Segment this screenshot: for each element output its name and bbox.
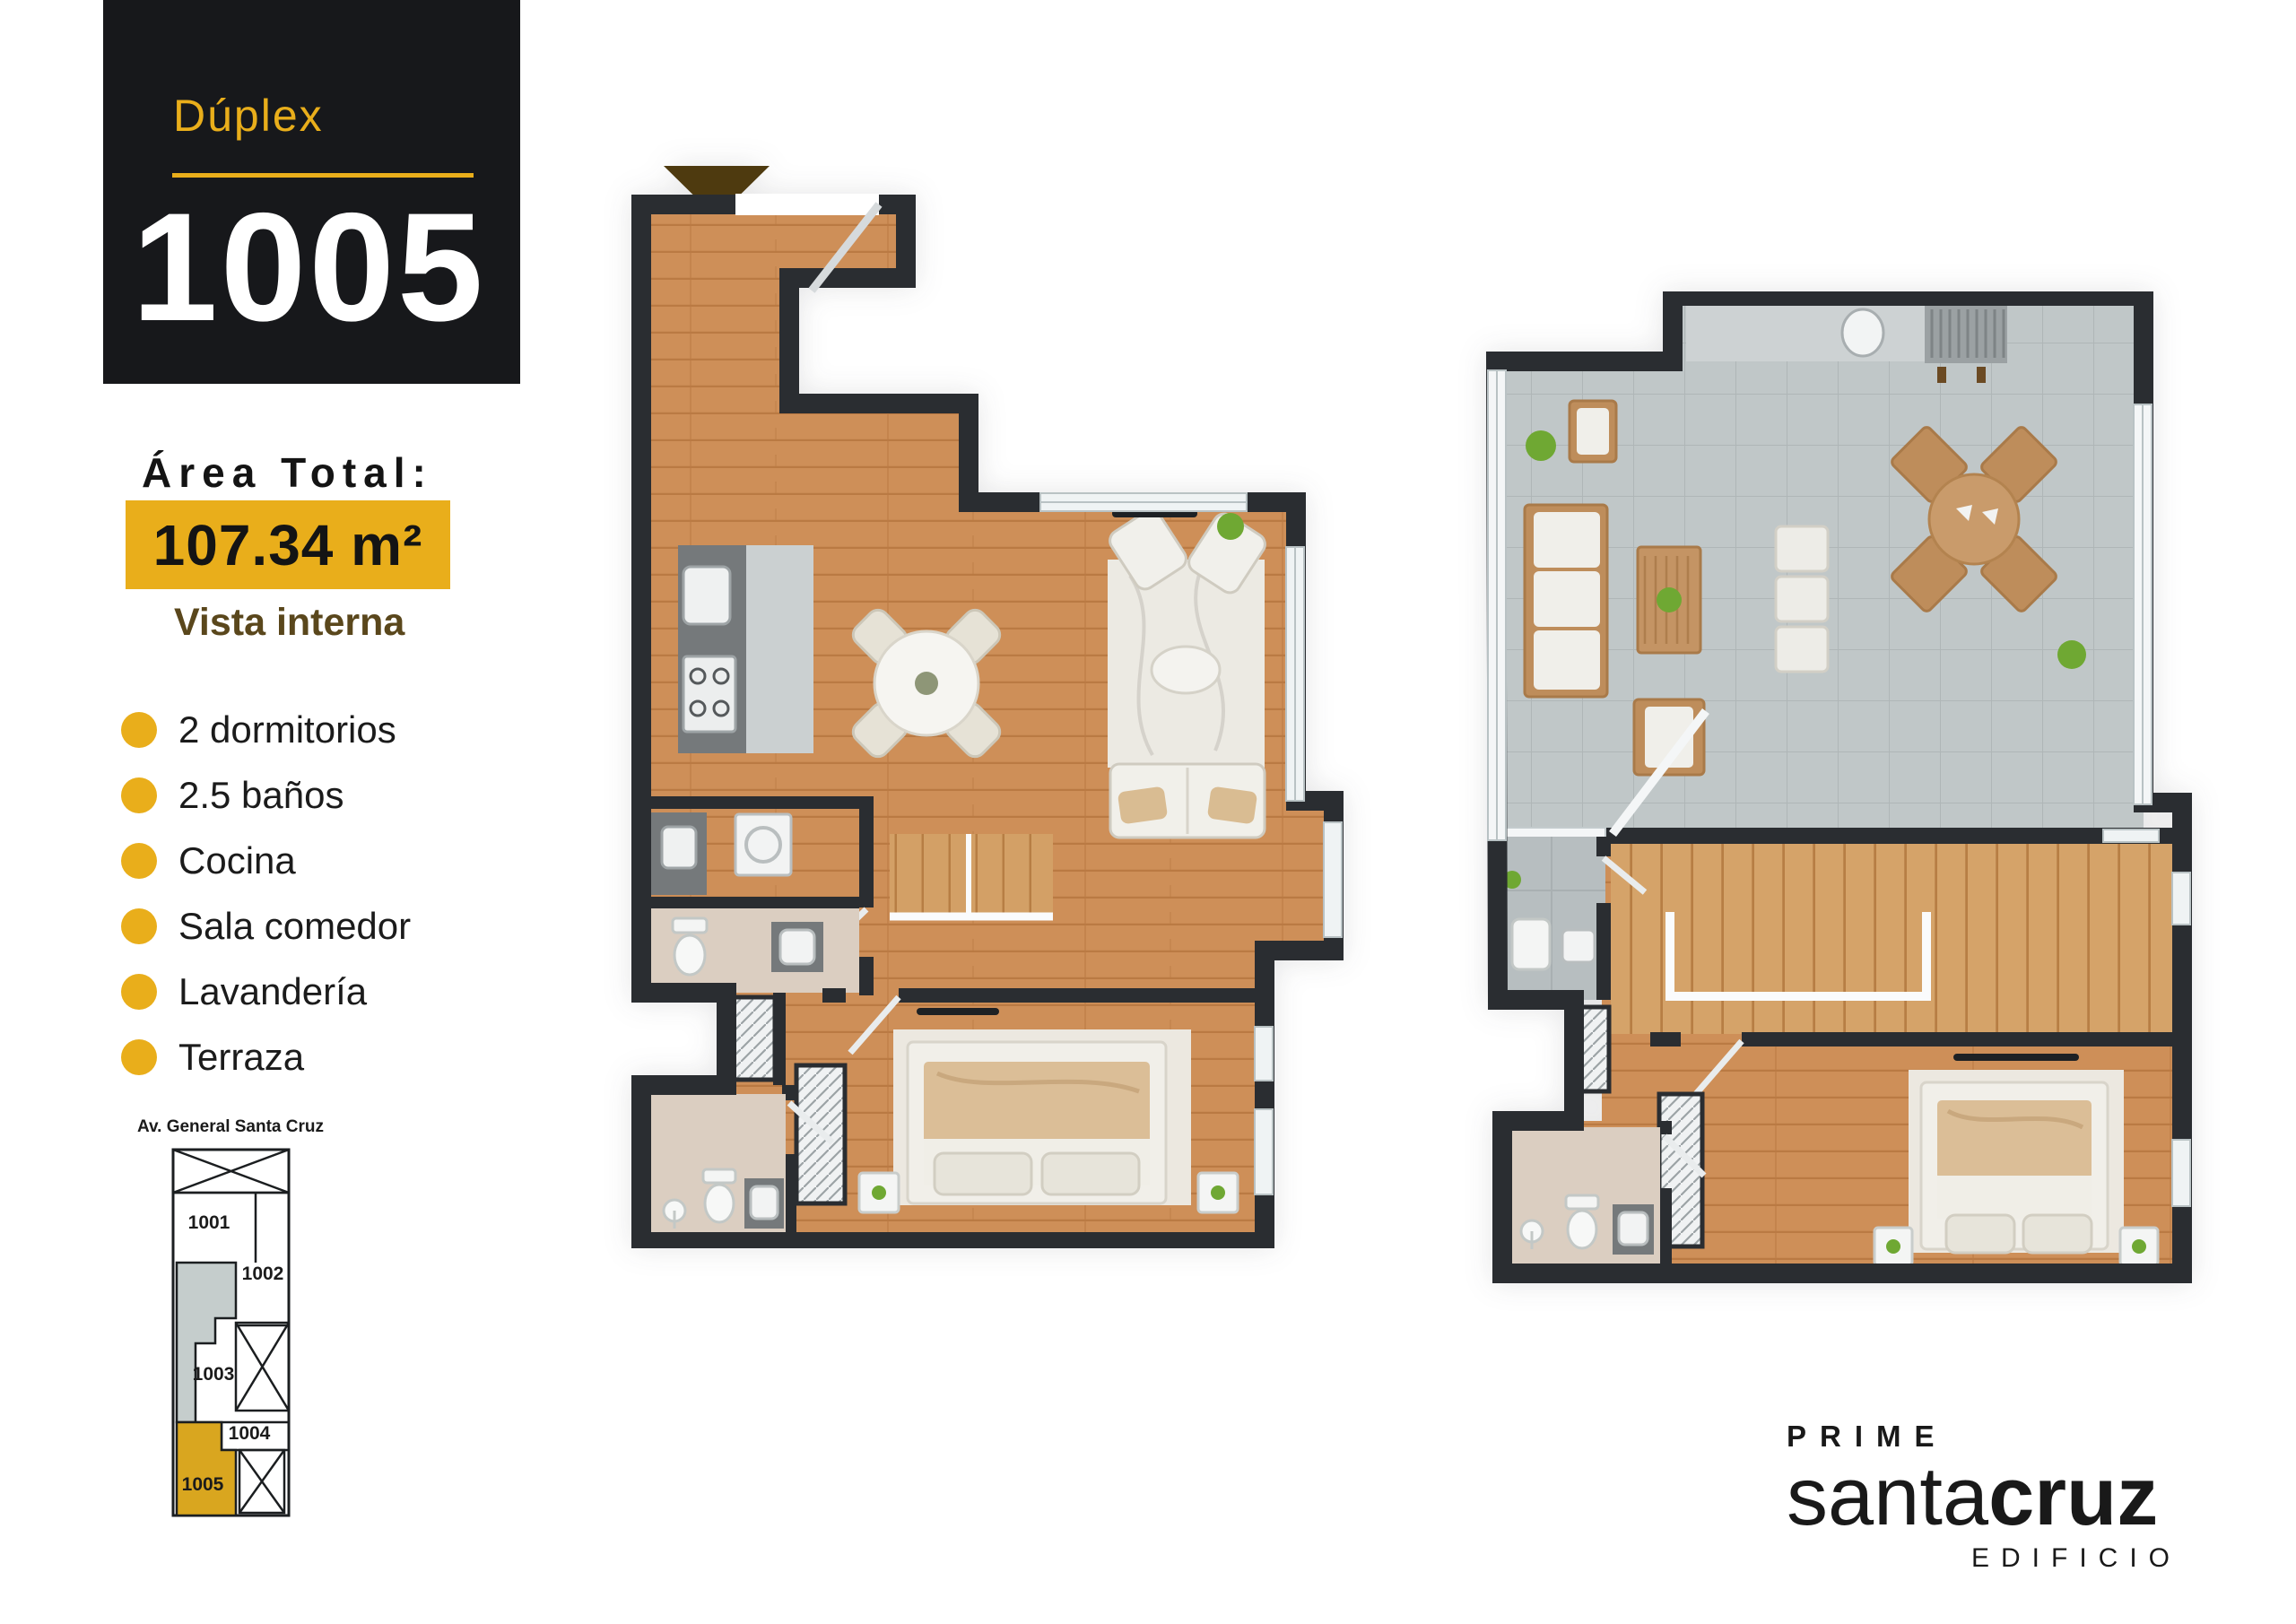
nightstand	[1874, 1228, 1912, 1265]
sofa	[1110, 764, 1265, 838]
keyplan-unit-label: 1001	[188, 1212, 230, 1233]
area-total-value: 107.34 m²	[153, 512, 423, 578]
floorplan-flyer-page: Dúplex 1005 Área Total: 107.34 m² Vista …	[0, 0, 2296, 1624]
kitchen-sink	[683, 567, 730, 624]
outdoor-sofa	[1525, 505, 1607, 697]
feature-item: Cocina	[121, 842, 411, 880]
toilet	[1566, 1195, 1598, 1248]
brand-santacruz: santacruz	[1787, 1455, 2181, 1538]
feature-label: 2.5 baños	[178, 774, 344, 817]
area-total-badge: 107.34 m²	[126, 500, 450, 589]
bullet-dot-icon	[121, 843, 157, 879]
feature-label: 2 dormitorios	[178, 708, 396, 751]
plant	[1657, 587, 1682, 612]
coffee-table	[1152, 647, 1220, 693]
plant	[2057, 640, 2086, 669]
floor-plan-level-1	[628, 145, 1372, 1253]
feature-item: Sala comedor	[121, 908, 411, 945]
unit-type-label: Dúplex	[173, 90, 324, 142]
outdoor-coffee-table	[1638, 547, 1700, 653]
stool-set	[1776, 526, 1828, 672]
brand-prime: PRIME	[1787, 1420, 2181, 1454]
bullet-dot-icon	[121, 908, 157, 944]
washing-machine	[735, 814, 791, 875]
area-total-label: Área Total:	[142, 448, 433, 497]
kitchen	[678, 545, 813, 753]
nightstand	[1198, 1173, 1238, 1212]
feature-label: Terraza	[178, 1036, 304, 1079]
bathroom-sink	[1562, 930, 1595, 962]
brand-cruz: cruz	[1988, 1451, 2158, 1542]
feature-item: Lavandería	[121, 973, 411, 1011]
unit-number: 1005	[132, 190, 491, 344]
brand-santa: santa	[1787, 1451, 1988, 1542]
plant	[1526, 430, 1556, 461]
bullet-dot-icon	[121, 1039, 157, 1075]
nightstand	[859, 1173, 899, 1212]
feature-label: Cocina	[178, 839, 296, 882]
brand-logo: PRIME santacruz EDIFICIO	[1787, 1420, 2181, 1574]
bullet-dot-icon	[121, 777, 157, 813]
street-label: Av. General Santa Cruz	[137, 1117, 324, 1136]
outdoor-chair	[1570, 401, 1616, 462]
features-list: 2 dormitorios 2.5 baños Cocina Sala come…	[121, 711, 411, 1076]
feature-label: Sala comedor	[178, 905, 411, 948]
bathroom-sink	[1613, 1204, 1654, 1255]
feature-item: 2.5 baños	[121, 777, 411, 814]
keyplan-unit-label: 1003	[193, 1364, 235, 1385]
bullet-dot-icon	[121, 974, 157, 1010]
key-plan: Av. General Santa Cruz	[81, 1103, 350, 1624]
plant	[1217, 513, 1244, 540]
brand-edificio: EDIFICIO	[1787, 1543, 2181, 1574]
terrace-sink	[1842, 309, 1883, 356]
unit-card: Dúplex 1005	[103, 0, 520, 384]
table-plant	[915, 672, 938, 695]
gold-underline	[172, 173, 474, 178]
tv	[1953, 1054, 2079, 1061]
feature-label: Lavandería	[178, 970, 367, 1013]
toilet	[703, 1169, 735, 1222]
view-type-label: Vista interna	[174, 601, 404, 645]
toilet	[673, 918, 707, 975]
bathroom-sink	[744, 1178, 784, 1229]
stairs	[1611, 844, 2182, 1034]
floor-plan-level-2	[1480, 291, 2197, 1291]
keyplan-unit-label: 1004	[229, 1423, 271, 1444]
double-bed	[908, 1042, 1166, 1203]
toilet	[1512, 919, 1550, 969]
keyplan-unit-label: 1002	[242, 1264, 284, 1284]
stove	[683, 656, 735, 732]
feature-item: 2 dormitorios	[121, 711, 411, 749]
nightstand	[2120, 1228, 2158, 1265]
laundry-sink	[662, 827, 696, 868]
bathroom-sink	[771, 922, 823, 972]
half-bathroom	[641, 897, 859, 993]
stairs	[890, 834, 1053, 916]
bullet-dot-icon	[121, 712, 157, 748]
double-bed	[1921, 1082, 2108, 1253]
keyplan-unit-label: 1005	[182, 1474, 224, 1495]
tv	[917, 1008, 999, 1015]
feature-item: Terraza	[121, 1038, 411, 1076]
